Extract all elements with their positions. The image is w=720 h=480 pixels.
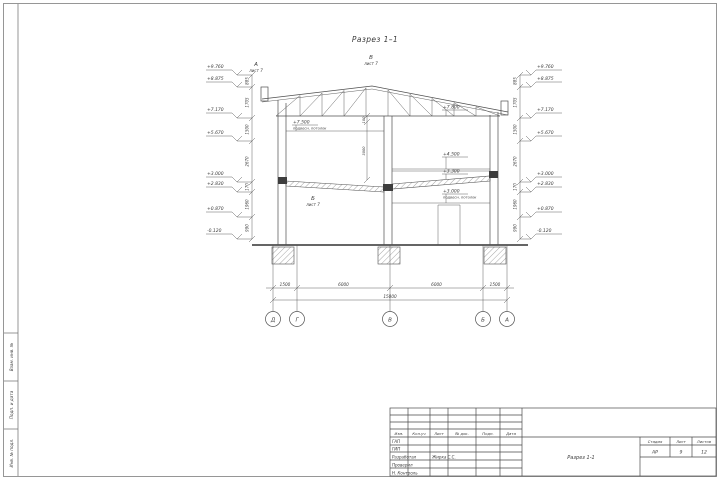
- elev-mark: +3.000: [207, 171, 224, 177]
- stamp-role: ГИП: [392, 447, 400, 452]
- stamp-sheets-value: 12: [701, 450, 707, 456]
- stamp-header: Лист: [433, 431, 444, 436]
- section-title: Разрез 1–1: [352, 35, 398, 44]
- axis-label: А: [504, 317, 509, 323]
- level-note: подвесн. потолок: [293, 127, 327, 131]
- stamp-sheet-value: 9: [680, 450, 683, 456]
- elev-mark: +0.870: [537, 206, 554, 212]
- dim-chain-left: 885 1705 1500 2670 170 1960 990: [245, 72, 256, 242]
- building-section: [252, 86, 528, 264]
- dim-chain-right: 885 1705 1500 2670 170 1960 990: [513, 72, 524, 242]
- dim: 990: [245, 224, 250, 232]
- dim: 885: [513, 77, 518, 85]
- elev-mark: +9.760: [207, 64, 224, 70]
- title-block: Изм. Кол.уч Лист № док. Подп. Дата ГАП Г…: [390, 408, 716, 476]
- level-label: +7.500: [293, 120, 310, 126]
- dim: 2670: [513, 156, 518, 167]
- elev-mark: +8.875: [207, 76, 224, 82]
- level-label: +3.000: [443, 189, 460, 195]
- stamp-stage-header: Листов: [696, 439, 712, 444]
- callout-ref: лист 7: [305, 202, 320, 207]
- stamp-header: № док.: [454, 431, 469, 436]
- dim: 170: [513, 183, 518, 191]
- dim: 1500: [513, 124, 518, 135]
- elev-mark: +9.760: [537, 64, 554, 70]
- stamp-stage-header: Стадия: [648, 439, 663, 444]
- margin-column: Взам. инв. № Подп. и дата Инв. № подл.: [4, 333, 18, 467]
- bottom-dimensions: 1500 6000 6000 1500 15000: [266, 245, 514, 311]
- dim: 170: [245, 183, 250, 191]
- elev-mark: +5.670: [207, 130, 224, 136]
- elev-mark: -0.120: [537, 228, 552, 234]
- stamp-role: Разработал: [392, 455, 417, 460]
- stamp-header: Кол.уч: [412, 431, 426, 436]
- roof-truss: [261, 86, 508, 116]
- section-drawing-svg: Взам. инв. № Подп. и дата Инв. № подл. Р…: [0, 0, 720, 480]
- stamp-name: Жирка С.С.: [431, 455, 456, 460]
- elev-mark: +2.830: [207, 181, 224, 187]
- stamp-header: Подп.: [482, 431, 494, 436]
- stamp-header: Дата: [505, 431, 517, 436]
- drawing-sheet: Взам. инв. № Подп. и дата Инв. № подл. Р…: [0, 0, 720, 480]
- elev-mark: -0.120: [207, 228, 222, 234]
- axis-label: Б: [481, 317, 485, 323]
- level-note: подвесн. потолок: [443, 196, 477, 200]
- dim: 100: [362, 116, 366, 124]
- elev-mark: +2.830: [537, 181, 554, 187]
- elev-mark: +8.875: [537, 76, 554, 82]
- dim: 3000: [362, 146, 366, 156]
- dim: 6000: [431, 282, 442, 287]
- callout-ref: лист 7: [248, 68, 263, 73]
- callout-ref: лист 7: [363, 61, 378, 66]
- level-label: +7.800: [443, 105, 460, 111]
- interior-dims: 100 3000: [362, 113, 370, 183]
- axis-bubbles: Д Г В Б А: [266, 312, 515, 327]
- dim: 1500: [245, 124, 250, 135]
- dim: 1500: [280, 282, 291, 287]
- margin-label-vzam: Взам. инв. №: [9, 342, 14, 371]
- stamp-role: Проверил: [392, 463, 413, 468]
- margin-label-podp: Подп. и дата: [9, 390, 14, 419]
- dim: 1705: [513, 97, 518, 108]
- elevation-marks-left: +9.760 +8.875 +7.170 +5.670 +3.000 +2.83…: [206, 64, 252, 239]
- dim: 990: [513, 224, 518, 232]
- dim: 6000: [338, 282, 349, 287]
- dim-total: 15000: [383, 294, 397, 299]
- walls-columns: [278, 100, 498, 245]
- door-opening: [438, 205, 460, 245]
- stamp-stage-header: Лист: [675, 439, 686, 444]
- elev-mark: +7.170: [537, 107, 554, 113]
- margin-label-inv: Инв. № подл.: [9, 439, 14, 468]
- stamp-header: Изм.: [395, 431, 404, 436]
- axis-label: В: [388, 317, 392, 323]
- level-label: +4.500: [443, 152, 460, 158]
- elev-mark: +5.670: [537, 130, 554, 136]
- dim: 1500: [490, 282, 501, 287]
- sheet-frame: [4, 4, 717, 477]
- stamp-stage-value: АР: [651, 450, 658, 456]
- elevation-marks-right: +9.760 +8.875 +7.170 +5.670 +3.000 +2.83…: [520, 64, 562, 239]
- dim: 885: [245, 77, 250, 85]
- dim: 1960: [245, 199, 250, 210]
- elev-mark: +7.170: [207, 107, 224, 113]
- stamp-role: ГАП: [392, 439, 400, 444]
- stamp-role: Н. Контроль: [392, 471, 418, 476]
- dim: 1960: [513, 199, 518, 210]
- elev-mark: +0.870: [207, 206, 224, 212]
- dim: 2670: [245, 156, 250, 167]
- stamp-drawing-name: Разрез 1-1: [567, 455, 594, 461]
- axis-label: Д: [270, 317, 276, 323]
- level-label: +3.300: [443, 169, 460, 175]
- dim: 1705: [245, 97, 250, 108]
- elev-mark: +3.000: [537, 171, 554, 177]
